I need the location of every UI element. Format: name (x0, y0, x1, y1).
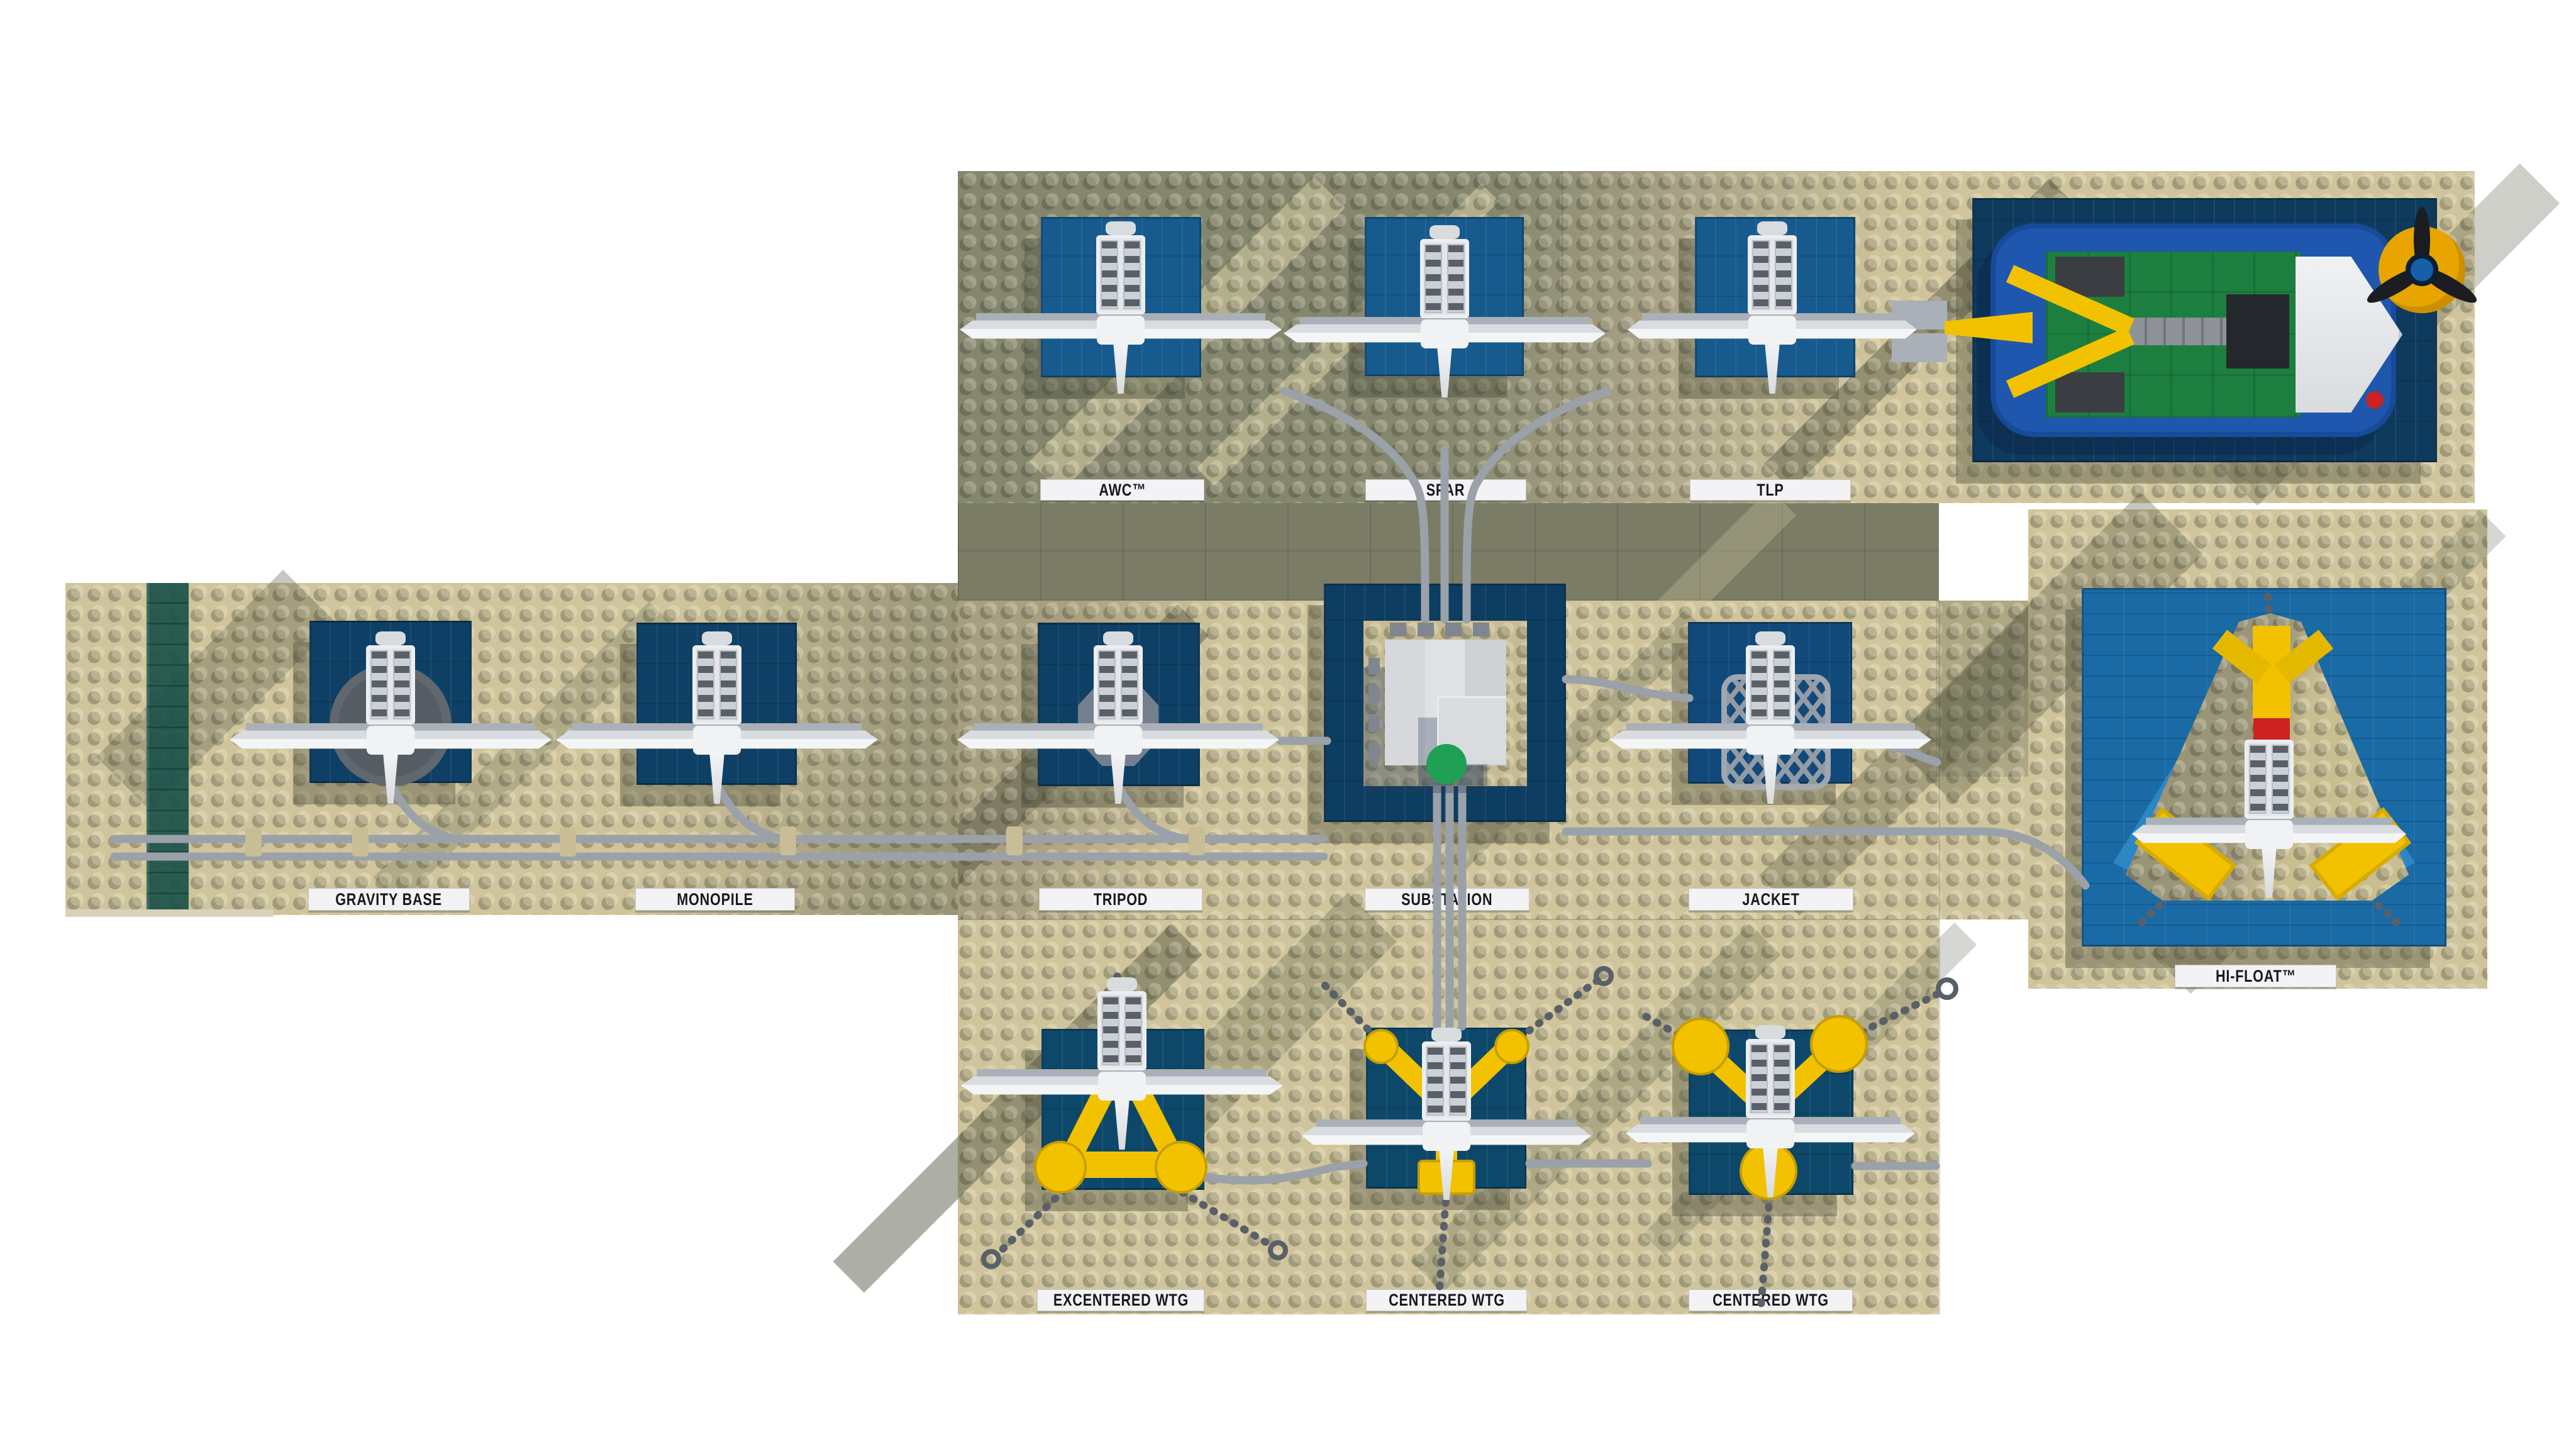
chain-centered1-ne (1519, 979, 1600, 1038)
nacelle-grille (370, 650, 388, 719)
nacelle (2245, 740, 2294, 819)
nacelle (1420, 239, 1469, 318)
substation-helipad (1426, 744, 1467, 784)
nacelle-grille (1424, 244, 1442, 313)
substation-connector (1418, 623, 1434, 636)
cable-clip (352, 828, 369, 857)
nacelle-grille (393, 650, 411, 719)
nacelle-grille (1750, 650, 1768, 719)
nacelle-cap (1757, 221, 1787, 235)
nacelle-cap (1103, 631, 1133, 645)
cable-tlp-substation (1467, 391, 1607, 619)
nacelle-grille (2272, 745, 2289, 814)
substation-connector (1368, 687, 1380, 703)
nacelle-cap (1430, 225, 1460, 239)
chain-centered2-south (1761, 1195, 1770, 1307)
cable-excentered-centered (1206, 1163, 1363, 1180)
ship-rotor-blades (2359, 207, 2485, 333)
substation-connector (1368, 658, 1380, 674)
nacelle (1748, 235, 1797, 314)
nacelle (366, 645, 415, 724)
rotor-hub (1423, 1122, 1470, 1151)
nacelle-grille (1123, 240, 1141, 309)
substation-connector (1368, 745, 1380, 761)
rotor-hub (2245, 820, 2293, 849)
cable-monopile (718, 786, 785, 839)
centered1-arm-cap (1365, 1030, 1397, 1063)
cable-clip (245, 828, 262, 857)
nacelle-grille (2249, 745, 2267, 814)
rotor-hub (1748, 316, 1796, 345)
cable-clip (1006, 826, 1023, 855)
rotor-hub (693, 726, 741, 755)
nacelle-cap (1107, 977, 1137, 991)
nacelle-grille (1121, 650, 1138, 719)
cable-awc-substation (1284, 391, 1425, 619)
nacelle-cap (702, 631, 732, 645)
nacelle-grille (1101, 240, 1118, 309)
anchor-ring (1270, 1243, 1285, 1258)
substation-connector (1390, 623, 1406, 636)
rotor-hub (1746, 1119, 1794, 1148)
nacelle-grille (1775, 240, 1792, 309)
ship-hold-dark (2226, 294, 2289, 369)
substation-connector (1368, 716, 1380, 732)
rotor-hub (1098, 1072, 1146, 1101)
excentered-pontoon (1035, 1142, 1085, 1192)
lego-offshore-windfarm-diorama: AWC™ SPAR TLP Gravity Base Monopile Trip… (0, 0, 2576, 1449)
cable-tripod-drop (1119, 787, 1186, 839)
nacelle (1097, 991, 1146, 1070)
centered2-pontoon (1673, 1019, 1728, 1074)
chain-hifloat-se (2370, 897, 2397, 923)
substation-connector (1473, 623, 1489, 636)
nacelle-cap (1755, 631, 1785, 645)
nacelle-grille (697, 650, 714, 719)
anchor-ring (984, 1252, 999, 1267)
nacelle (1422, 1041, 1471, 1121)
rotor-hub (1094, 726, 1142, 755)
chain-hifloat-sw (2140, 897, 2168, 924)
nacelle-grille (719, 650, 737, 719)
cable-clip (560, 828, 576, 857)
cable-substation-jacket (1566, 679, 1689, 698)
chain-excentered-se (1182, 1192, 1273, 1246)
ship-signal-red (2366, 391, 2384, 409)
chain-centered1-south (1439, 1190, 1446, 1297)
nacelle-grille (1773, 1044, 1790, 1113)
substation-connector (1445, 623, 1462, 636)
nacelle-grille (1449, 1046, 1467, 1116)
nacelle (1746, 645, 1795, 724)
anchor-ring (1596, 969, 1611, 984)
cable-substation-hifloat (1566, 831, 2085, 885)
nacelle-grille (1773, 650, 1790, 719)
nacelle-grille (1102, 996, 1119, 1065)
nacelle-cap (1106, 221, 1136, 235)
excentered-pontoon (1156, 1142, 1206, 1192)
chain-centered1-nw (1321, 981, 1376, 1038)
cable-clip (780, 826, 796, 855)
rotor-hub (1746, 726, 1794, 755)
anchor-ring (1938, 980, 1956, 997)
nacelle-cap (1755, 1025, 1785, 1039)
rotor-hub (1421, 319, 1468, 348)
centered2-pontoon (1811, 1016, 1867, 1072)
nacelle (692, 645, 741, 724)
nacelle-grille (1752, 240, 1770, 309)
nacelle-grille (1124, 996, 1142, 1065)
nacelle (1094, 645, 1143, 724)
nacelle (1096, 235, 1145, 314)
rotor-hub (1097, 316, 1145, 345)
nacelle-cap (1431, 1028, 1462, 1041)
nacelle-grille (1426, 1046, 1444, 1116)
nacelle-cap (375, 631, 406, 645)
cable-gravity-base (391, 784, 458, 839)
nacelle-grille (1098, 650, 1116, 719)
nacelle-grille (1750, 1044, 1768, 1113)
nacelle-grille (1447, 244, 1465, 313)
cable-clip (1189, 826, 1205, 855)
ship-machinery (2055, 372, 2124, 413)
rotor-hub (367, 726, 414, 755)
chain-excentered-sw (996, 1190, 1064, 1255)
nacelle (1746, 1039, 1795, 1118)
centered1-arm-cap (1496, 1030, 1528, 1063)
